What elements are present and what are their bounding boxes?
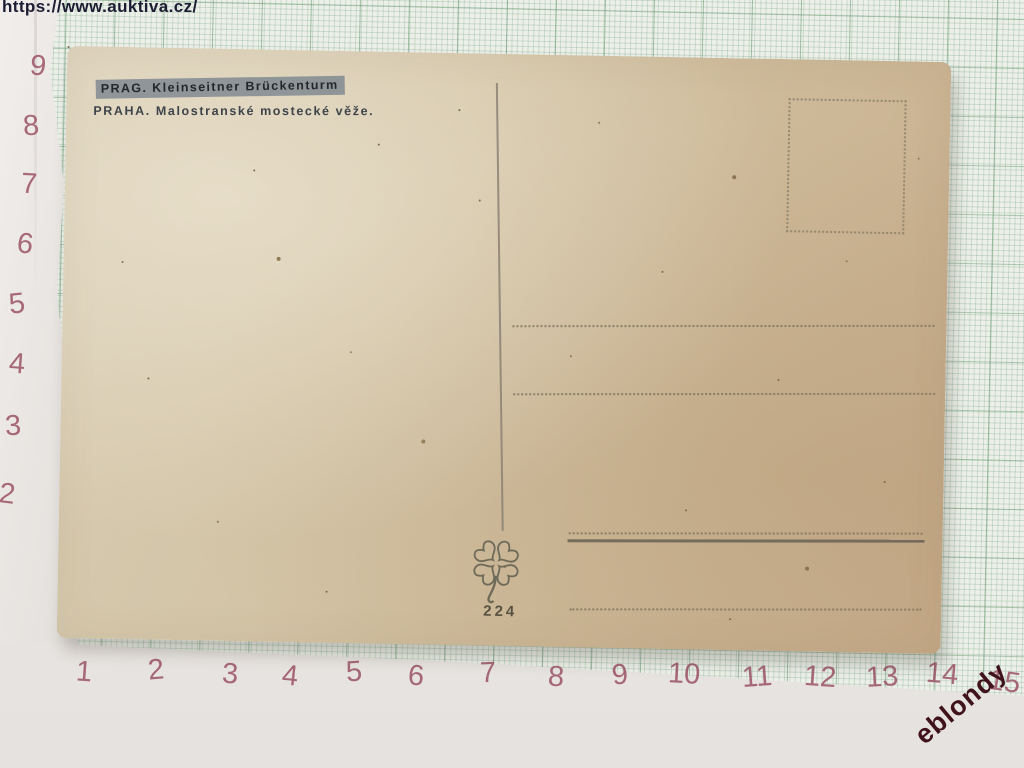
- ruler-number-left: 3: [4, 410, 22, 444]
- ruler-number-bottom: 3: [221, 658, 239, 692]
- ruler-number-bottom: 11: [741, 660, 773, 695]
- czech-caption: PRAHA. Malostranské mostecké věže.: [93, 104, 374, 118]
- address-line-3-dotted: [569, 532, 923, 534]
- ruler-number-left: 8: [22, 109, 40, 143]
- address-line-3-solid: [568, 539, 925, 542]
- address-line-4: [569, 608, 921, 610]
- ruler-number-bottom: 7: [479, 657, 497, 691]
- ruler-number-bottom: 9: [610, 658, 630, 693]
- ruler-number-bottom: 13: [865, 660, 899, 695]
- ruler-number-bottom: 10: [667, 657, 701, 692]
- ruler-number-bottom: 8: [547, 660, 565, 694]
- ruler-number-left: 7: [20, 168, 38, 202]
- four-leaf-clover-icon: [464, 531, 527, 608]
- postcard-back: PRAG. Kleinseitner Brückenturm PRAHA. Ma…: [57, 46, 952, 654]
- censored-german-caption: PRAG. Kleinseitner Brückenturm: [96, 76, 345, 99]
- ruler-number-bottom: 6: [407, 659, 426, 693]
- ruler-number-left: 4: [8, 347, 26, 381]
- address-line-2: [513, 393, 935, 395]
- ruler-number-bottom: 5: [345, 655, 363, 689]
- address-line-1: [512, 325, 934, 327]
- ruler-number-bottom: 12: [803, 660, 837, 695]
- ruler-number-left: 5: [7, 287, 27, 322]
- ruler-number-bottom: 1: [75, 655, 93, 689]
- publisher-number: 224: [470, 602, 530, 620]
- center-divider-line: [496, 83, 503, 531]
- ruler-number-left: 9: [28, 49, 48, 84]
- auction-site-url-watermark: https://www.auktiva.cz/: [2, 0, 198, 17]
- ruler-number-bottom: 2: [147, 653, 166, 687]
- card-texture-specks: [67, 46, 69, 48]
- ruler-number-bottom: 14: [925, 657, 960, 693]
- ruler-number-bottom: 4: [280, 659, 300, 694]
- photo-scene: 9 8 7 6 5 4 3 2 1 2 3 4 5 6 7 8 9 10 11 …: [0, 0, 1024, 768]
- stamp-box: [786, 98, 906, 234]
